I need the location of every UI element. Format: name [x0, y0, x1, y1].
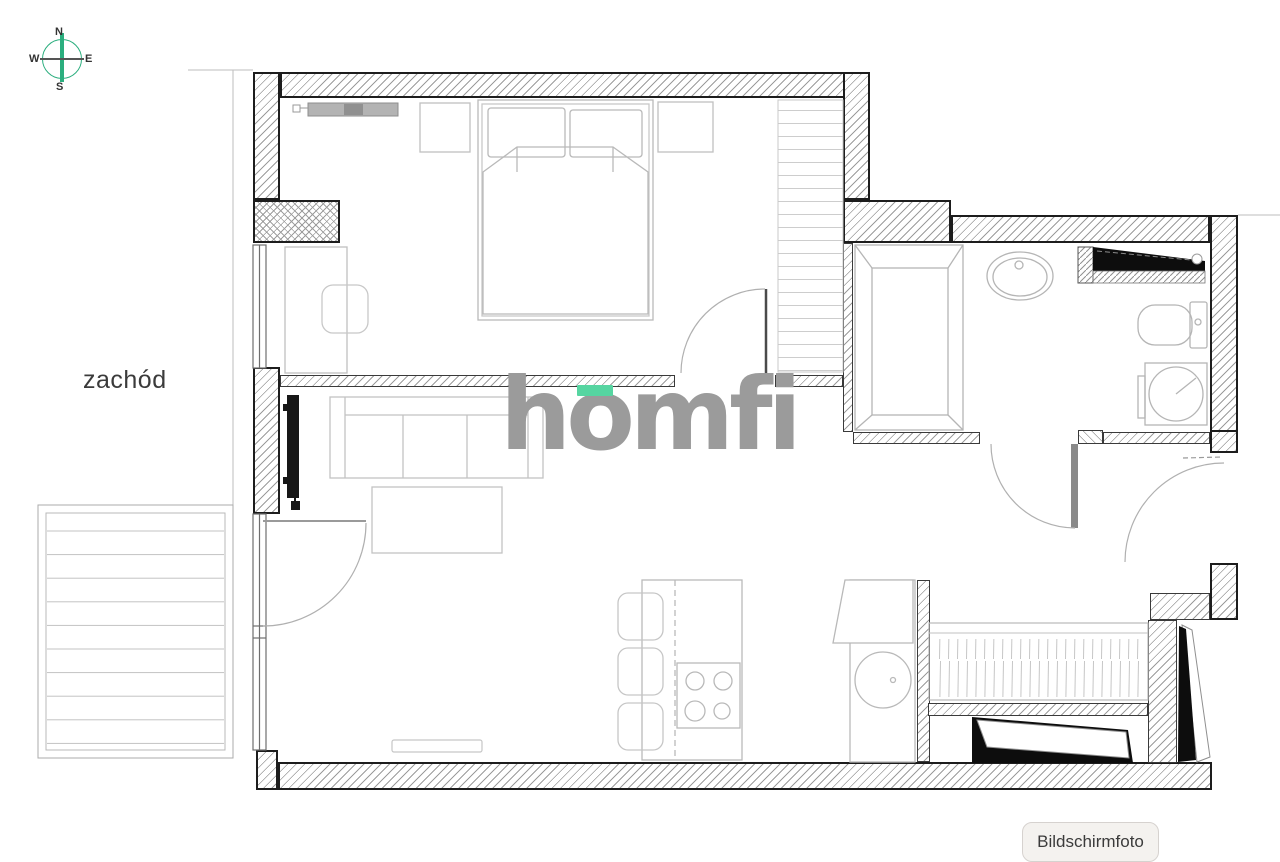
pillow-left — [488, 108, 565, 157]
wall-right-upper — [1210, 215, 1238, 453]
wall-bathroom-door-jamb — [1078, 430, 1103, 444]
screenshot-root: { "compass": { "n": "N", "e": "E", "s": … — [0, 0, 1280, 841]
wall-left-mid — [253, 367, 280, 514]
wall-corner-bottom-left — [256, 750, 278, 790]
wall-hall-strip — [928, 703, 1148, 716]
direction-label-west: zachód — [83, 366, 167, 395]
entrance-door — [1125, 457, 1224, 562]
bedroom-window — [253, 245, 266, 368]
balcony-door — [263, 521, 366, 626]
tv — [283, 395, 300, 510]
living-room-window — [253, 514, 266, 750]
compass-needle-we — [40, 58, 84, 60]
desk — [285, 247, 347, 373]
homfi-logo-accent-bar — [577, 385, 613, 396]
wall-left-stub — [253, 200, 340, 243]
hall-mirror-panel — [1178, 625, 1210, 762]
washing-machine — [1138, 363, 1207, 425]
kitchen-sink-cabinet — [833, 580, 915, 762]
wall-bathroom-top — [951, 215, 1210, 243]
compass-label-e: E — [85, 53, 92, 65]
wall-left-upper — [253, 72, 280, 200]
bathroom-door — [991, 444, 1078, 528]
bathroom-sink — [987, 252, 1053, 300]
bedroom-wardrobe — [778, 100, 843, 372]
wall-shower-left — [843, 243, 853, 432]
compass-label-s: S — [56, 81, 63, 93]
wall-entry-block-top — [1210, 430, 1238, 453]
shower — [855, 245, 963, 430]
wall-entry-step — [1150, 593, 1210, 620]
wall-kitchen-hall — [917, 580, 930, 762]
wall-entry-block-bottom — [1210, 563, 1238, 620]
desk-chair — [322, 285, 368, 333]
compass-label-w: W — [29, 53, 39, 65]
kitchen-counter — [642, 580, 742, 760]
toilet — [1138, 302, 1207, 348]
dining-chairs — [618, 593, 663, 750]
blanket — [483, 147, 648, 314]
nightstand-left — [420, 103, 470, 152]
wall-bottom — [278, 762, 1212, 790]
shoe-cabinet — [972, 717, 1133, 763]
coffee-table — [372, 487, 502, 553]
wall-top — [280, 72, 870, 98]
vanity-counter — [1078, 247, 1205, 283]
hall-wardrobe — [929, 623, 1148, 700]
wall-entry-inner — [1148, 620, 1177, 763]
compass-rose-icon: N E S W — [0, 0, 120, 110]
screenshot-filename-chip[interactable]: Bildschirmfoto — [1022, 822, 1159, 862]
pillow-right — [570, 110, 642, 157]
floor-mat — [392, 740, 482, 752]
stove — [677, 663, 740, 728]
wall-bathroom-bottom-right — [1103, 432, 1210, 444]
nightstand-right — [658, 102, 713, 152]
bed — [478, 100, 653, 320]
homfi-watermark: homfi — [500, 365, 797, 465]
compass-label-n: N — [55, 26, 63, 38]
balcony — [38, 505, 233, 758]
wall-bedroom-hall-top — [843, 200, 951, 243]
wall-bedroom-right — [843, 72, 870, 200]
radiator — [293, 103, 398, 116]
wall-bathroom-bottom-left — [853, 432, 980, 444]
